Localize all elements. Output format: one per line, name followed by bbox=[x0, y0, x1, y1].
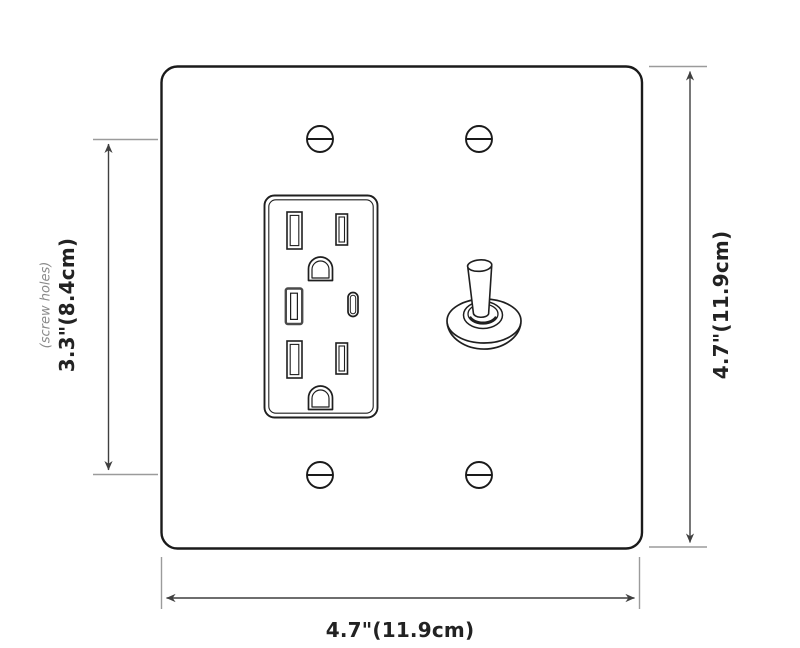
plate-width-label: 4.7"(11.9cm) bbox=[326, 618, 475, 642]
screw-icon-bottom-right bbox=[466, 462, 492, 488]
screw-icon-top-right bbox=[466, 126, 492, 152]
screw-spacing-label: 3.3"(8.4cm) bbox=[55, 238, 79, 372]
diagram-line-art bbox=[0, 0, 800, 648]
screw-holes-note: (screw holes) bbox=[39, 262, 54, 349]
screw-icon-bottom-left bbox=[307, 462, 333, 488]
plate-height-label: 4.7"(11.9cm) bbox=[709, 231, 733, 380]
screw-icon-top-left bbox=[307, 126, 333, 152]
wall-plate-outline bbox=[162, 67, 643, 549]
dimension-diagram: (screw holes) 3.3"(8.4cm) 4.7"(11.9cm) 4… bbox=[0, 0, 800, 648]
